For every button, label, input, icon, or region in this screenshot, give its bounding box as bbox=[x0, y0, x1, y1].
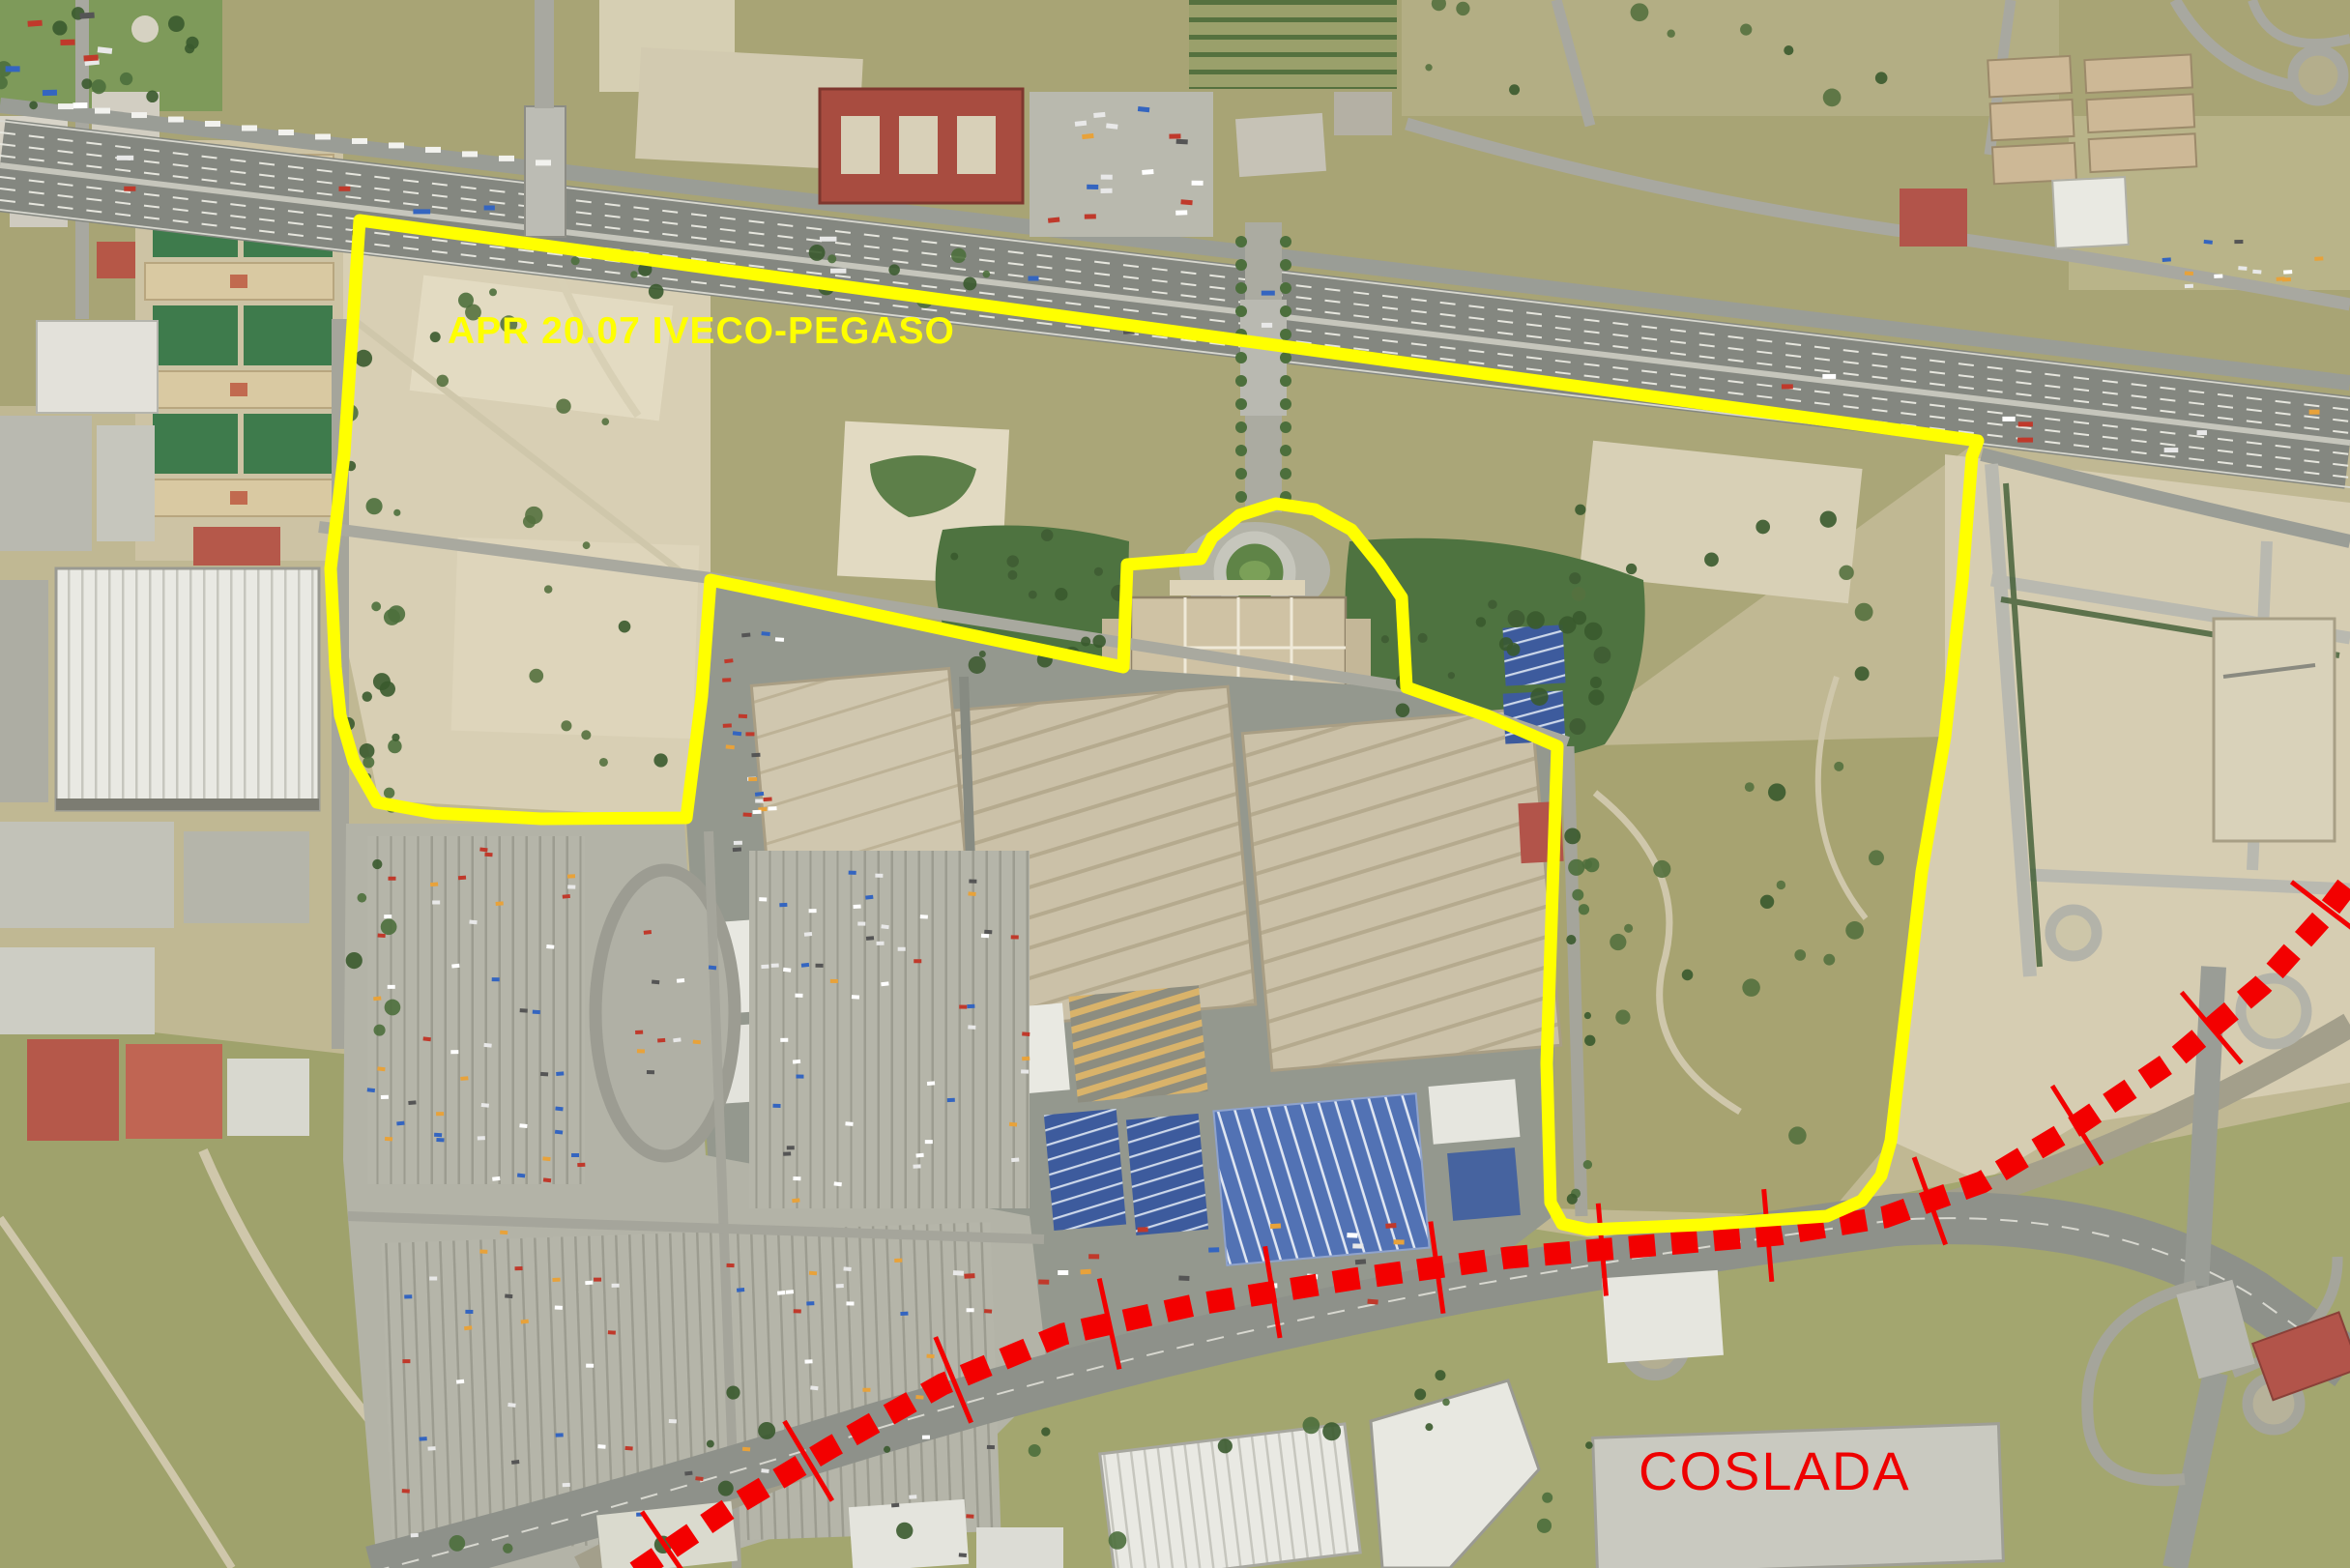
aerial-map: APR 20.07 IVECO-PEGASO COSLADA bbox=[0, 0, 2350, 1568]
municipal-boundary-dashed-line bbox=[636, 886, 2347, 1568]
coslada-municipality-label: COSLADA bbox=[1639, 1444, 1911, 1498]
municipal-boundary-ticks bbox=[642, 882, 2350, 1568]
apr-boundary-polygon bbox=[331, 220, 1978, 1230]
annotation-overlay bbox=[0, 0, 2350, 1568]
apr-zone-label: APR 20.07 IVECO-PEGASO bbox=[448, 312, 955, 350]
